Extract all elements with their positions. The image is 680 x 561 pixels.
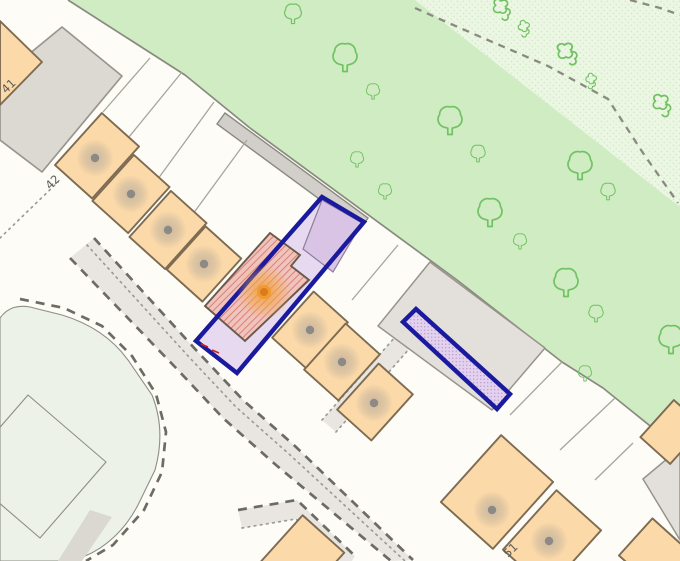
house-dot-icon	[355, 384, 393, 422]
property-map: 41 42 51	[0, 0, 680, 561]
subject-property-marker	[237, 265, 291, 319]
house-dot-icon	[185, 245, 223, 283]
house-dot-icon	[323, 343, 361, 381]
house-dot-icon	[473, 491, 511, 529]
house-dot-icon	[291, 311, 329, 349]
house-dot-icon	[149, 211, 187, 249]
house-dot-icon	[76, 139, 114, 177]
map-canvas[interactable]: 41 42 51	[0, 0, 680, 561]
house-dot-icon	[530, 522, 568, 560]
house-dot-icon	[112, 175, 150, 213]
